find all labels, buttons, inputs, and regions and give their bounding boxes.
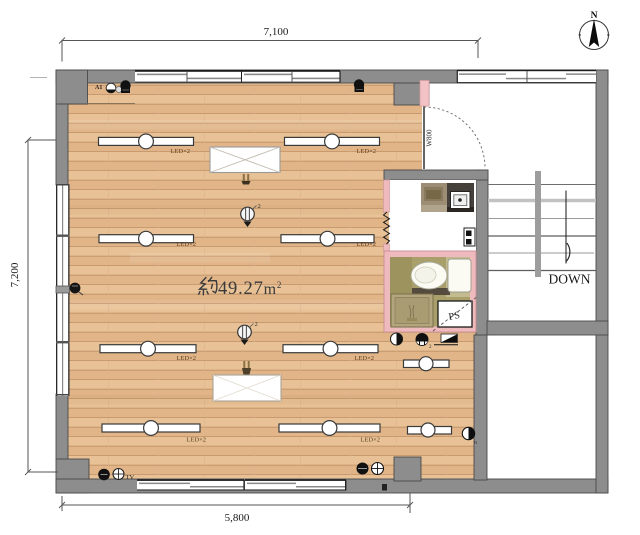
- svg-text:2: 2: [258, 203, 261, 210]
- svg-text:LED×2: LED×2: [356, 148, 376, 155]
- svg-text:5,800: 5,800: [225, 512, 250, 524]
- svg-text:49.27m2: 49.27m2: [218, 279, 282, 299]
- svg-text:W800: W800: [426, 129, 434, 147]
- svg-text:A1: A1: [95, 85, 102, 91]
- svg-text:LED×2: LED×2: [176, 355, 196, 362]
- svg-text:2: 2: [255, 321, 258, 328]
- svg-text:LED×2: LED×2: [360, 437, 380, 444]
- svg-text:PS: PS: [448, 310, 461, 323]
- svg-text:LED×2: LED×2: [170, 148, 190, 155]
- svg-text:7,100: 7,100: [264, 26, 289, 38]
- svg-text:7,200: 7,200: [9, 262, 21, 287]
- svg-text:LED×2: LED×2: [186, 437, 206, 444]
- svg-text:N: N: [591, 11, 598, 21]
- svg-text:TV: TV: [126, 474, 135, 481]
- svg-text:LED×2: LED×2: [176, 241, 196, 248]
- svg-text:LED×2: LED×2: [356, 241, 376, 248]
- svg-text:DOWN: DOWN: [549, 272, 591, 287]
- svg-text:LED×2: LED×2: [354, 355, 374, 362]
